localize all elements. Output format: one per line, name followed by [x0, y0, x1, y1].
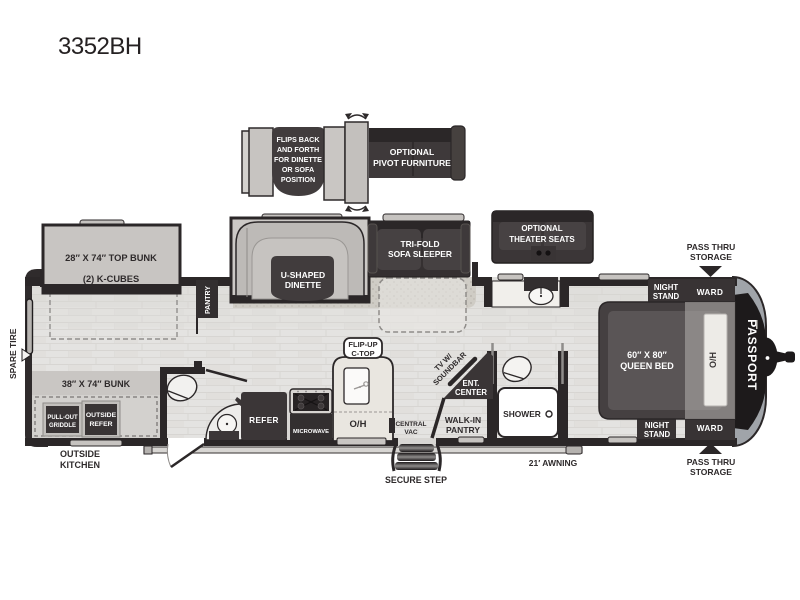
svg-text:MICROWAVE: MICROWAVE: [293, 429, 329, 435]
svg-text:KITCHEN: KITCHEN: [60, 460, 100, 470]
svg-text:STORAGE: STORAGE: [690, 252, 732, 262]
svg-text:OR SOFA: OR SOFA: [282, 165, 314, 174]
svg-text:OPTIONAL: OPTIONAL: [390, 147, 434, 157]
svg-text:QUEEN BED: QUEEN BED: [620, 361, 674, 371]
svg-text:28″ X 74″ TOP BUNK: 28″ X 74″ TOP BUNK: [65, 253, 157, 263]
svg-text:VAC: VAC: [404, 429, 418, 436]
svg-text:OPTIONAL: OPTIONAL: [521, 224, 562, 233]
svg-text:O/H: O/H: [708, 352, 718, 368]
svg-text:38″ X 74″ BUNK: 38″ X 74″ BUNK: [62, 379, 131, 389]
svg-text:3352BH: 3352BH: [58, 33, 142, 60]
svg-text:U-SHAPED: U-SHAPED: [281, 270, 325, 280]
svg-text:O/H: O/H: [350, 419, 367, 430]
svg-text:PANTRY: PANTRY: [446, 425, 480, 435]
svg-text:C-TOP: C-TOP: [351, 349, 374, 358]
svg-text:AND FORTH: AND FORTH: [277, 145, 319, 154]
svg-text:STORAGE: STORAGE: [690, 467, 732, 477]
svg-text:(2) K-CUBES: (2) K-CUBES: [83, 274, 139, 284]
svg-text:OUTSIDE: OUTSIDE: [86, 412, 117, 419]
svg-text:60″ X 80″: 60″ X 80″: [627, 350, 667, 360]
svg-text:STAND: STAND: [653, 292, 680, 301]
svg-text:NIGHT: NIGHT: [645, 421, 669, 430]
svg-text:PULL-OUT: PULL-OUT: [47, 415, 78, 421]
svg-text:WALK-IN: WALK-IN: [445, 415, 481, 425]
svg-text:WARD: WARD: [697, 424, 724, 433]
svg-text:ENT.: ENT.: [463, 379, 480, 388]
svg-text:TRI-FOLD: TRI-FOLD: [400, 239, 439, 249]
svg-text:THEATER SEATS: THEATER SEATS: [509, 235, 575, 244]
svg-text:PANTRY: PANTRY: [205, 286, 212, 314]
svg-text:21′ AWNING: 21′ AWNING: [529, 458, 578, 468]
svg-text:DINETTE: DINETTE: [285, 280, 322, 290]
svg-text:POSITION: POSITION: [281, 175, 315, 184]
svg-text:PIVOT FURNITURE: PIVOT FURNITURE: [373, 158, 451, 168]
svg-text:SHOWER: SHOWER: [503, 409, 541, 419]
svg-text:OUTSIDE: OUTSIDE: [60, 449, 100, 459]
svg-text:CENTER: CENTER: [455, 388, 487, 397]
svg-text:PASS THRU: PASS THRU: [687, 242, 736, 252]
svg-text:CENTRAL: CENTRAL: [395, 421, 426, 428]
svg-text:REFER: REFER: [89, 421, 112, 428]
svg-text:WARD: WARD: [697, 288, 724, 297]
svg-text:SOFA SLEEPER: SOFA SLEEPER: [388, 249, 452, 259]
svg-text:NIGHT: NIGHT: [654, 283, 678, 292]
svg-text:FLIP-UP: FLIP-UP: [348, 340, 377, 349]
svg-text:FLIPS BACK: FLIPS BACK: [276, 135, 320, 144]
svg-text:PASSPORT: PASSPORT: [745, 319, 759, 391]
svg-text:PASS THRU: PASS THRU: [687, 457, 736, 467]
svg-text:REFER: REFER: [249, 416, 279, 425]
svg-text:FOR DINETTE: FOR DINETTE: [274, 155, 322, 164]
svg-text:SECURE STEP: SECURE STEP: [385, 475, 447, 485]
svg-text:SPARE TIRE: SPARE TIRE: [8, 328, 18, 379]
svg-text:STAND: STAND: [644, 430, 671, 439]
svg-text:GRIDDLE: GRIDDLE: [49, 423, 76, 429]
